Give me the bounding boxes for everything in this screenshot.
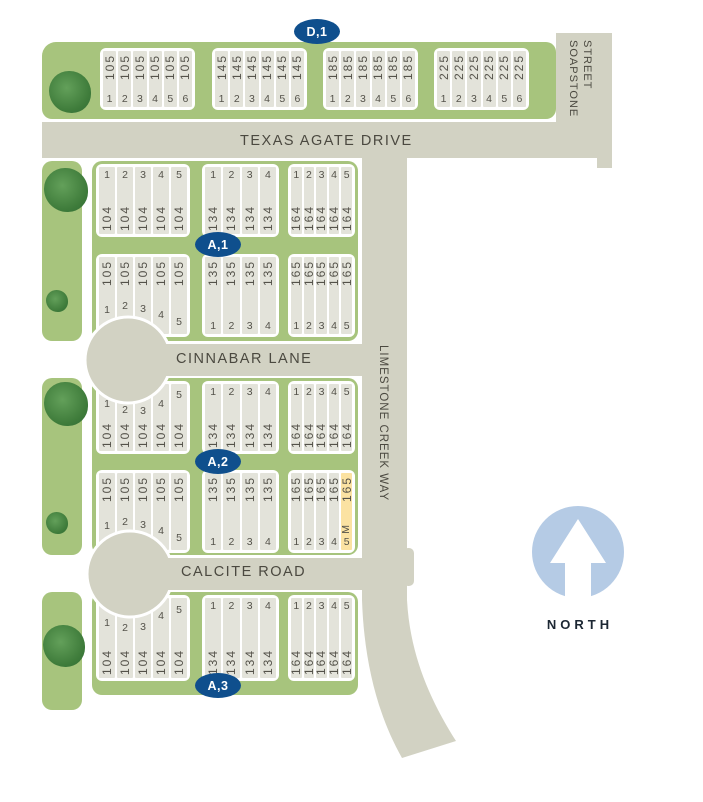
site-plan-map: TEXAS AGATE DRIVE CINNABAR LANE CALCITE … [0,0,703,802]
block-badge: A,2 [195,449,241,474]
lot-number: 2 [306,170,312,181]
lot-number: 1 [104,399,110,410]
lot-sqft: 104 [101,649,113,675]
lot-sqft: 135 [244,476,256,502]
lot-sqft: 164 [290,205,302,231]
lot-number: 1 [210,170,216,181]
lot-number: 4 [158,399,164,410]
lot-number: 3 [247,321,253,332]
tree-icon [43,625,85,667]
lot-sqft: 164 [341,649,353,675]
lot-sqft: 225 [453,54,465,80]
lot-sqft: 104 [137,649,149,675]
tree-icon [49,71,91,113]
lot-sqft: 165 [315,260,327,286]
lot-number: 3 [247,601,253,612]
lot-number: 1 [210,387,216,398]
lot-number: 6 [406,94,412,105]
lot-number: 3 [360,94,366,105]
lot-sqft: 135 [225,476,237,502]
lot-number: 1 [293,387,299,398]
lot-number: 5 [344,601,350,612]
lot-sqft: 135 [262,260,274,286]
lot-sqft: 135 [244,260,256,286]
lot-number: 1 [107,94,113,105]
lot-number: 4 [158,526,164,537]
lot-sqft: 225 [468,54,480,80]
lot-number: 5 [344,170,350,181]
lot-sqft: 225 [513,54,525,80]
lot-number: 5 [344,537,350,548]
lot-number: 2 [122,517,128,528]
lot-number: 1 [210,321,216,332]
lot-sqft: 105 [173,476,185,502]
lot-number: 5 [279,94,285,105]
lot-sqft: 105 [134,54,146,80]
lot-sqft: 165 [328,476,340,502]
lot-number: 4 [158,310,164,321]
lot-number: 2 [122,623,128,634]
lot-number: 3 [319,537,325,548]
lot-sqft: 145 [231,54,243,80]
lot-sqft: 165 [341,476,353,502]
lot-sqft: 145 [216,54,228,80]
lot-number: 6 [295,94,301,105]
lot-sqft: 104 [173,205,185,231]
lot-sqft: 225 [438,54,450,80]
lot-number: 4 [486,94,492,105]
lot-sqft: 165 [315,476,327,502]
lot-number: 2 [122,170,128,181]
lot-number: 6 [517,94,523,105]
lot-number: 2 [306,537,312,548]
lot-sqft: 105 [119,54,131,80]
lot-sqft: 105 [149,54,161,80]
lot-sqft: 104 [155,649,167,675]
lot-number: 5 [501,94,507,105]
lot-number: 2 [228,601,234,612]
lot-number: 2 [306,601,312,612]
lot-number: 3 [137,94,143,105]
lot-sqft: 105 [101,476,113,502]
lot-sqft: 104 [119,205,131,231]
lot-sqft: 134 [262,422,274,448]
lot-number: 5 [176,390,182,401]
lot-number: 3 [319,601,325,612]
lot-number: 4 [331,170,337,181]
lot-number: 3 [471,94,477,105]
lot-sqft: 164 [290,422,302,448]
lot-number: 2 [456,94,462,105]
block-badge: A,1 [195,232,241,257]
tree-icon [46,290,68,312]
lot-sqft: 134 [262,205,274,231]
lot-number: 2 [306,321,312,332]
lot-number: 3 [249,94,255,105]
lot-sqft: 104 [173,422,185,448]
lot-sqft: 134 [244,205,256,231]
lot-sqft: 164 [328,649,340,675]
lot-sqft: 104 [137,422,149,448]
lot-number: 3 [140,304,146,315]
lot-number: 1 [210,601,216,612]
tree-icon [44,168,88,212]
street-label-soapstone-line2: STREET [581,40,593,117]
block-badge: D,1 [294,19,340,44]
lot-sqft: 134 [225,205,237,231]
north-arrow-icon [528,506,628,610]
lot-number: 5 [390,94,396,105]
lot-number: 2 [234,94,240,105]
lot-number: 1 [330,94,336,105]
street-label-limestone-creek-way: LIMESTONE CREEK WAY [377,345,389,501]
lot-number: 1 [104,521,110,532]
lot-sqft: 145 [261,54,273,80]
lot-sqft: 185 [327,54,339,80]
lot-number: 1 [104,170,110,181]
lot-number: 3 [140,170,146,181]
lot-sqft: 225 [498,54,510,80]
lot-number: 2 [122,405,128,416]
lot-sqft: 145 [291,54,303,80]
lot-number: 3 [140,406,146,417]
lot-number: 3 [319,321,325,332]
lot-number: 2 [122,94,128,105]
lot-number: 1 [441,94,447,105]
lot-number: 2 [122,301,128,312]
lot-sqft: 134 [225,422,237,448]
lot-sqft: 104 [173,649,185,675]
lot-number: 2 [228,170,234,181]
lot-number: 6 [183,94,189,105]
lot-sqft: 164 [315,422,327,448]
lot-sqft: 134 [207,205,219,231]
tree-icon [44,382,88,426]
lot-sqft: 164 [290,649,302,675]
lot-sqft: 225 [483,54,495,80]
lot-sqft: 135 [207,476,219,502]
lot-number: 5 [176,317,182,328]
lot-number: 5 [167,94,173,105]
lot-sqft: 104 [101,205,113,231]
lot-sqft: 105 [101,260,113,286]
lot-number: 1 [293,537,299,548]
lot-number: 4 [158,170,164,181]
lot-sqft: 165 [328,260,340,286]
road-step [597,156,612,168]
lot-sqft: 104 [137,205,149,231]
lot-number: 4 [331,601,337,612]
lot-number: 4 [265,321,271,332]
lot-sqft: 164 [315,205,327,231]
street-label-soapstone-line1: SOAPSTONE [567,40,579,117]
lot-sqft: 104 [155,422,167,448]
lot-sqft: 104 [119,649,131,675]
model-marker: M [341,525,352,534]
lot-sqft: 134 [207,422,219,448]
lot-number: 4 [265,537,271,548]
lot-sqft: 105 [155,260,167,286]
lot-number: 3 [319,387,325,398]
lot-sqft: 134 [262,649,274,675]
lot-sqft: 164 [341,205,353,231]
lot-number: 4 [152,94,158,105]
lot-number: 5 [176,605,182,616]
lot-number: 5 [176,170,182,181]
lot-sqft: 104 [101,422,113,448]
lot-number: 1 [293,170,299,181]
lot-number: 5 [344,387,350,398]
lot-sqft: 165 [290,476,302,502]
lot-number: 1 [219,94,225,105]
lot-sqft: 185 [402,54,414,80]
lot-sqft: 105 [179,54,191,80]
street-label-calcite-road: CALCITE ROAD [181,564,306,580]
lot-number: 4 [265,387,271,398]
lot-sqft: 104 [119,422,131,448]
lot-sqft: 105 [137,260,149,286]
lot-number: 3 [140,622,146,633]
lot-number: 3 [140,520,146,531]
lot-sqft: 185 [387,54,399,80]
lot-number: 1 [104,305,110,316]
lot-sqft: 134 [244,649,256,675]
lot-number: 4 [264,94,270,105]
lot-sqft: 135 [225,260,237,286]
lot-number: 2 [345,94,351,105]
lot-number: 2 [228,321,234,332]
lot-sqft: 145 [276,54,288,80]
lot-sqft: 105 [173,260,185,286]
lot-sqft: 105 [164,54,176,80]
lot-number: 2 [228,537,234,548]
lot-number: 4 [265,170,271,181]
lot-number: 1 [293,321,299,332]
lot-number: 3 [247,537,253,548]
lot-number: 4 [265,601,271,612]
lot-sqft: 135 [207,260,219,286]
lot-sqft: 185 [342,54,354,80]
lot-sqft: 134 [207,649,219,675]
lot-number: 3 [247,170,253,181]
street-label-soapstone-street: SOAPSTONE STREET [567,40,593,117]
lot-number: 4 [331,321,337,332]
street-label-texas-agate-drive: TEXAS AGATE DRIVE [240,133,413,149]
lot-sqft: 135 [262,476,274,502]
lot-sqft: 165 [290,260,302,286]
street-label-cinnabar-lane: CINNABAR LANE [176,351,312,367]
lot-sqft: 164 [328,422,340,448]
lot-sqft: 185 [357,54,369,80]
lot-sqft: 105 [119,476,131,502]
lot-number: 4 [158,611,164,622]
lot-sqft: 104 [155,205,167,231]
north-label: NORTH [528,618,628,631]
lot-number: 3 [247,387,253,398]
lot-number: 4 [375,94,381,105]
lot-number: 1 [210,537,216,548]
lot-number: 1 [104,618,110,629]
lot-sqft: 105 [119,260,131,286]
lot-sqft: 145 [246,54,258,80]
lot-sqft: 164 [341,422,353,448]
tree-icon [46,512,68,534]
lot-sqft: 185 [372,54,384,80]
lot-number: 1 [293,601,299,612]
lot-sqft: 105 [137,476,149,502]
lot-sqft: 105 [155,476,167,502]
lot-number: 2 [306,387,312,398]
block-badge: A,3 [195,673,241,698]
lot-sqft: 105 [104,54,116,80]
lot-sqft: 134 [225,649,237,675]
lot-number: 4 [331,387,337,398]
lot-sqft: 164 [315,649,327,675]
lot-number: 3 [319,170,325,181]
lot-sqft: 134 [244,422,256,448]
north-indicator: NORTH [528,506,628,631]
lot-number: 2 [228,387,234,398]
lot-number: 4 [331,537,337,548]
lot-number: 5 [344,321,350,332]
lot-number: 5 [176,533,182,544]
lot-sqft: 165 [341,260,353,286]
lot-sqft: 164 [328,205,340,231]
